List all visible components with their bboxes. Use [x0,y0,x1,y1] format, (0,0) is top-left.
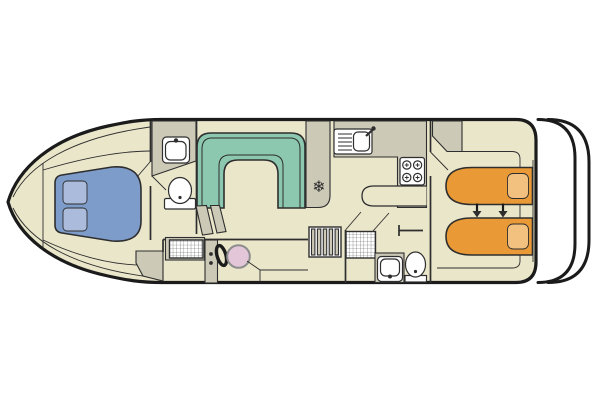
front-shower-tray [170,240,204,258]
pillow [508,224,529,249]
pillow [508,174,529,199]
faucet-icon [174,138,178,142]
stove [400,158,425,186]
pillow [63,208,87,231]
floorplan-canvas: ❄ [0,0,600,400]
rear-toilet-bowl [406,252,426,277]
platform-inner-line [538,120,575,283]
stern-swim-platform [538,120,589,283]
fridge-snowflake-icon: ❄ [312,177,325,196]
step-tread [317,229,320,255]
companionway-steps [309,227,341,257]
boat-floorplan: ❄ [0,0,600,400]
galley-sink [334,126,376,154]
fridge-unit: ❄ [306,121,330,208]
console-instrument [209,261,213,265]
toilet-flush-icon [414,270,417,273]
step-tread [323,229,326,255]
console-instrument [209,252,213,256]
washbasin-bowl [166,142,187,161]
faucet-knob [371,126,375,130]
step-tread [329,229,332,255]
step-tread [312,229,315,255]
toilet-bowl [169,178,192,204]
toilet-flush-icon [178,196,181,199]
rear-washbasin-bowl [381,259,400,276]
helm-seat [227,245,250,268]
step-tread [335,229,338,255]
pillow [63,181,87,204]
platform-outer-line [548,120,589,283]
faucet-icon [388,275,392,279]
rear-shower-tray [346,232,376,259]
breakfast-bar [362,186,427,206]
